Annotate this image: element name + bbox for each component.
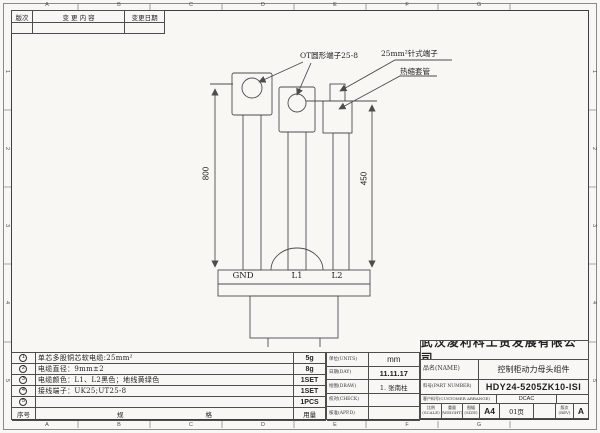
label-l2: L2 [322, 271, 352, 281]
check-value [369, 394, 420, 407]
zone-row-left: 4 [3, 299, 10, 306]
callout-ot-terminal: OT圆形端子25-8 [300, 50, 358, 61]
note-qty: 1PCS [294, 397, 326, 408]
info-row: 校对(CHECK) [327, 394, 420, 407]
note-qty: 1SET [294, 386, 326, 397]
note-desc: 电缆颜色：L1、L2黑色；地线黄绿色 [36, 375, 294, 386]
check-label: 校对(CHECK) [327, 394, 369, 407]
drawing-sheet: A B C D E F G A B C D E F G 1 2 3 4 5 1 … [0, 0, 600, 433]
date-label: 日期(DAY) [327, 367, 369, 380]
circled-number: 3 [19, 376, 27, 384]
info-row: 核准(APP.D) [327, 407, 420, 421]
part-number-label: 料号(PART NUMBER) [421, 380, 479, 395]
table-row: 1 单芯多股铜芯软电缆:25mm² 5g [12, 353, 326, 364]
zone-col-bottom: D [258, 422, 268, 429]
rev-label: 版次(REV) [556, 404, 574, 419]
zone-col-top: E [330, 2, 340, 9]
revision-empty-cell [12, 23, 33, 34]
approve-value [369, 407, 420, 421]
note-qty: 1SET [294, 375, 326, 386]
product-name-value: 控制柜动力母头组件 [479, 360, 589, 380]
info-block: 单位(UNITS) mm 日期(DAY) 11.11.17 绘图(DRAW) 1… [326, 352, 420, 420]
zone-row-left: 2 [3, 145, 10, 152]
units-label: 单位(UNITS) [327, 353, 369, 367]
zone-row-right: 1 [590, 68, 597, 75]
size-value: A4 [480, 404, 500, 419]
note-qty: 5g [294, 353, 326, 364]
zone-col-top: A [42, 2, 52, 9]
note-desc: 电缆直径：9mm±2 [36, 364, 294, 375]
note-desc [36, 397, 294, 408]
table-row: 3 电缆颜色：L1、L2黑色；地线黄绿色 1SET [12, 375, 326, 386]
revision-empty-cell [33, 23, 125, 34]
note-qty: 8g [294, 364, 326, 375]
zone-row-left: 3 [3, 222, 10, 229]
revision-table: 版次 变 更 内 容 变更日期 [11, 10, 165, 34]
rev-value: A [574, 404, 589, 419]
scale-label: 比例(SCALE) [421, 404, 442, 419]
zone-col-bottom: B [114, 422, 124, 429]
label-l1: L1 [282, 271, 312, 281]
units-value: mm [369, 353, 420, 367]
info-row: 单位(UNITS) mm [327, 353, 420, 367]
zone-col-bottom: E [330, 422, 340, 429]
zone-col-bottom: A [42, 422, 52, 429]
bottom-empty-cell [534, 404, 556, 419]
customer-part-label: 客户料号(CUSTOMER ARRANGE) [421, 395, 497, 404]
notes-col-no: 序号 [12, 408, 36, 421]
note-desc: 单芯多股铜芯软电缆:25mm² [36, 353, 294, 364]
callout-pin-terminal: 25mm²针式端子 [381, 48, 438, 59]
weight-label: 重量(WEIGHT) [442, 404, 463, 419]
note-desc: 接线端子：UK25;UT25-8 [36, 386, 294, 397]
table-row: 5 1PCS [12, 397, 326, 408]
customer-empty-cell [557, 395, 589, 404]
zone-row-right: 2 [590, 145, 597, 152]
notes-table: 1 单芯多股铜芯软电缆:25mm² 5g 2 电缆直径：9mm±2 8g 3 电… [11, 352, 326, 420]
circled-number: 2 [19, 365, 27, 373]
notes-col-qty: 用量 [294, 408, 326, 421]
zone-col-bottom: F [402, 422, 412, 429]
zone-col-top: D [258, 2, 268, 9]
note-number: 2 [12, 364, 36, 375]
info-row: 日期(DAY) 11.11.17 [327, 367, 420, 380]
page-value: 01页 [500, 404, 534, 419]
zone-row-left: 5 [3, 377, 10, 384]
zone-col-top: B [114, 2, 124, 9]
table-row: 2 电缆直径：9mm±2 8g [12, 364, 326, 375]
dim-450-text: 450 [360, 167, 369, 191]
table-row: 4 接线端子：UK25;UT25-8 1SET [12, 386, 326, 397]
notes-footer-row: 序号 规 格 用量 [12, 408, 326, 421]
notes-col-spec: 规 格 [36, 408, 294, 421]
circled-number: 1 [19, 354, 27, 362]
revision-col-content: 变 更 内 容 [33, 11, 125, 23]
circled-number: 4 [19, 387, 27, 395]
note-number: 1 [12, 353, 36, 364]
dim-800-text: 800 [202, 162, 211, 186]
approve-label: 核准(APP.D) [327, 407, 369, 421]
title-block: 武汉凌利科工贸发展有限公司 品名(NAME) 控制柜动力母头组件 料号(PART… [420, 340, 589, 420]
date-value: 11.11.17 [369, 367, 420, 380]
label-gnd: GND [228, 271, 258, 281]
draw-value: 1. 张南柱 [369, 380, 420, 394]
zone-col-bottom: G [474, 422, 484, 429]
circled-number: 5 [19, 398, 27, 406]
note-number: 5 [12, 397, 36, 408]
zone-col-top: F [402, 2, 412, 9]
info-row: 绘图(DRAW) 1. 张南柱 [327, 380, 420, 394]
zone-row-right: 3 [590, 222, 597, 229]
company-name: 武汉凌利科工贸发展有限公司 [421, 341, 589, 360]
zone-row-right: 4 [590, 299, 597, 306]
part-number-value: HDY24-5205ZK10-ISI [479, 380, 589, 395]
customer-part-value: DCAC [497, 395, 557, 404]
size-label: 图幅(SIZE) [463, 404, 480, 419]
note-number: 4 [12, 386, 36, 397]
draw-label: 绘图(DRAW) [327, 380, 369, 394]
revision-col-date: 变更日期 [125, 11, 165, 23]
callout-heat-shrink: 热缩套管 [400, 66, 430, 77]
revision-col-rev: 版次 [12, 11, 33, 23]
zone-row-right: 5 [590, 377, 597, 384]
note-number: 3 [12, 375, 36, 386]
zone-col-bottom: C [186, 422, 196, 429]
zone-row-left: 1 [3, 68, 10, 75]
revision-empty-cell [125, 23, 165, 34]
zone-col-top: C [186, 2, 196, 9]
product-name-label: 品名(NAME) [421, 360, 479, 380]
zone-col-top: G [474, 2, 484, 9]
